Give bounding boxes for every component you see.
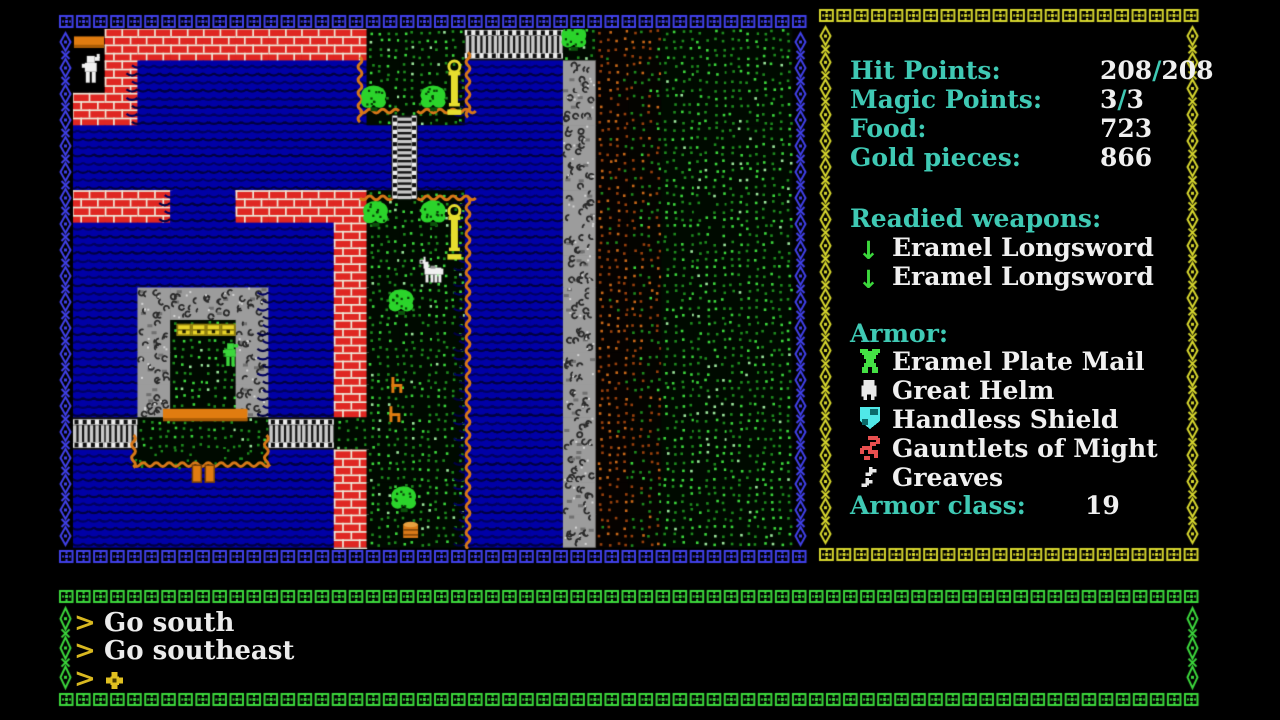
stats-panel: Hit Points: 208/208 Magic Points: 3/3 Fo…	[818, 8, 1200, 562]
readied-weapons-header: Readied weapons:	[850, 206, 1101, 232]
hit-points-value: 208/208	[1100, 58, 1214, 84]
shop-counter	[161, 408, 248, 422]
gold-label: Gold pieces:	[850, 143, 1021, 172]
armor-item: Handless Shield	[858, 407, 1118, 436]
game-screen: Hit Points: 208/208 Magic Points: 3/3 Fo…	[0, 0, 1280, 720]
food-value: 723	[1100, 116, 1152, 142]
armor-class-row: Armor class: 19	[850, 493, 1026, 519]
greaves-icon	[858, 467, 892, 494]
command-entry: >Go southeast	[74, 638, 294, 665]
command-text: Go south	[104, 608, 234, 638]
down-arrow-icon: ↓	[858, 238, 892, 264]
command-text: Go southeast	[104, 636, 294, 666]
armor-item: Greaves	[858, 465, 1003, 494]
weapon-name: Eramel Longsword	[892, 233, 1154, 262]
armor-item: Eramel Plate Mail	[858, 349, 1145, 378]
command-input-line[interactable]: >	[74, 666, 123, 695]
gauntlet-icon	[858, 436, 892, 465]
armor-name: Eramel Plate Mail	[892, 347, 1145, 376]
armor-class-label: Armor class:	[850, 491, 1026, 520]
weapon-name: Eramel Longsword	[892, 262, 1154, 291]
villager-npc	[219, 343, 241, 375]
treasure-chests	[175, 319, 239, 338]
armor-item: Great Helm	[858, 378, 1054, 407]
armor-name: Gauntlets of Might	[892, 434, 1158, 463]
stat-row-hit-points: Hit Points: 208/208	[850, 58, 1001, 84]
stat-row-food: Food: 723	[850, 116, 926, 142]
plate-mail-icon	[858, 349, 892, 378]
food-label: Food:	[850, 114, 926, 143]
hit-points-label: Hit Points:	[850, 56, 1001, 85]
prompt-icon: >	[74, 610, 104, 637]
weapon-item: ↓Eramel Longsword	[858, 264, 1154, 293]
player-character	[78, 55, 102, 87]
armor-header: Armor:	[850, 321, 948, 347]
armor-name: Handless Shield	[892, 405, 1118, 434]
armor-item: Gauntlets of Might	[858, 436, 1158, 465]
stat-row-magic-points: Magic Points: 3/3	[850, 87, 1042, 113]
stat-row-gold: Gold pieces: 866	[850, 145, 1021, 171]
armor-name: Great Helm	[892, 376, 1054, 405]
weapon-item: ↓Eramel Longsword	[858, 235, 1154, 264]
shield-icon	[858, 407, 892, 436]
prompt-icon: >	[74, 638, 104, 665]
down-arrow-icon: ↓	[858, 267, 892, 293]
command-entry: >Go south	[74, 610, 234, 637]
magic-points-value: 3/3	[1100, 87, 1144, 113]
horse	[417, 255, 447, 287]
command-log-panel: >Go south >Go southeast >	[58, 589, 1200, 707]
armor-name: Greaves	[892, 463, 1003, 492]
prompt-icon: >	[74, 666, 104, 693]
helm-icon	[858, 380, 892, 407]
armor-class-value: 19	[1085, 493, 1120, 519]
magic-points-label: Magic Points:	[850, 85, 1042, 114]
gold-value: 866	[1100, 145, 1152, 171]
text-cursor	[106, 666, 123, 696]
